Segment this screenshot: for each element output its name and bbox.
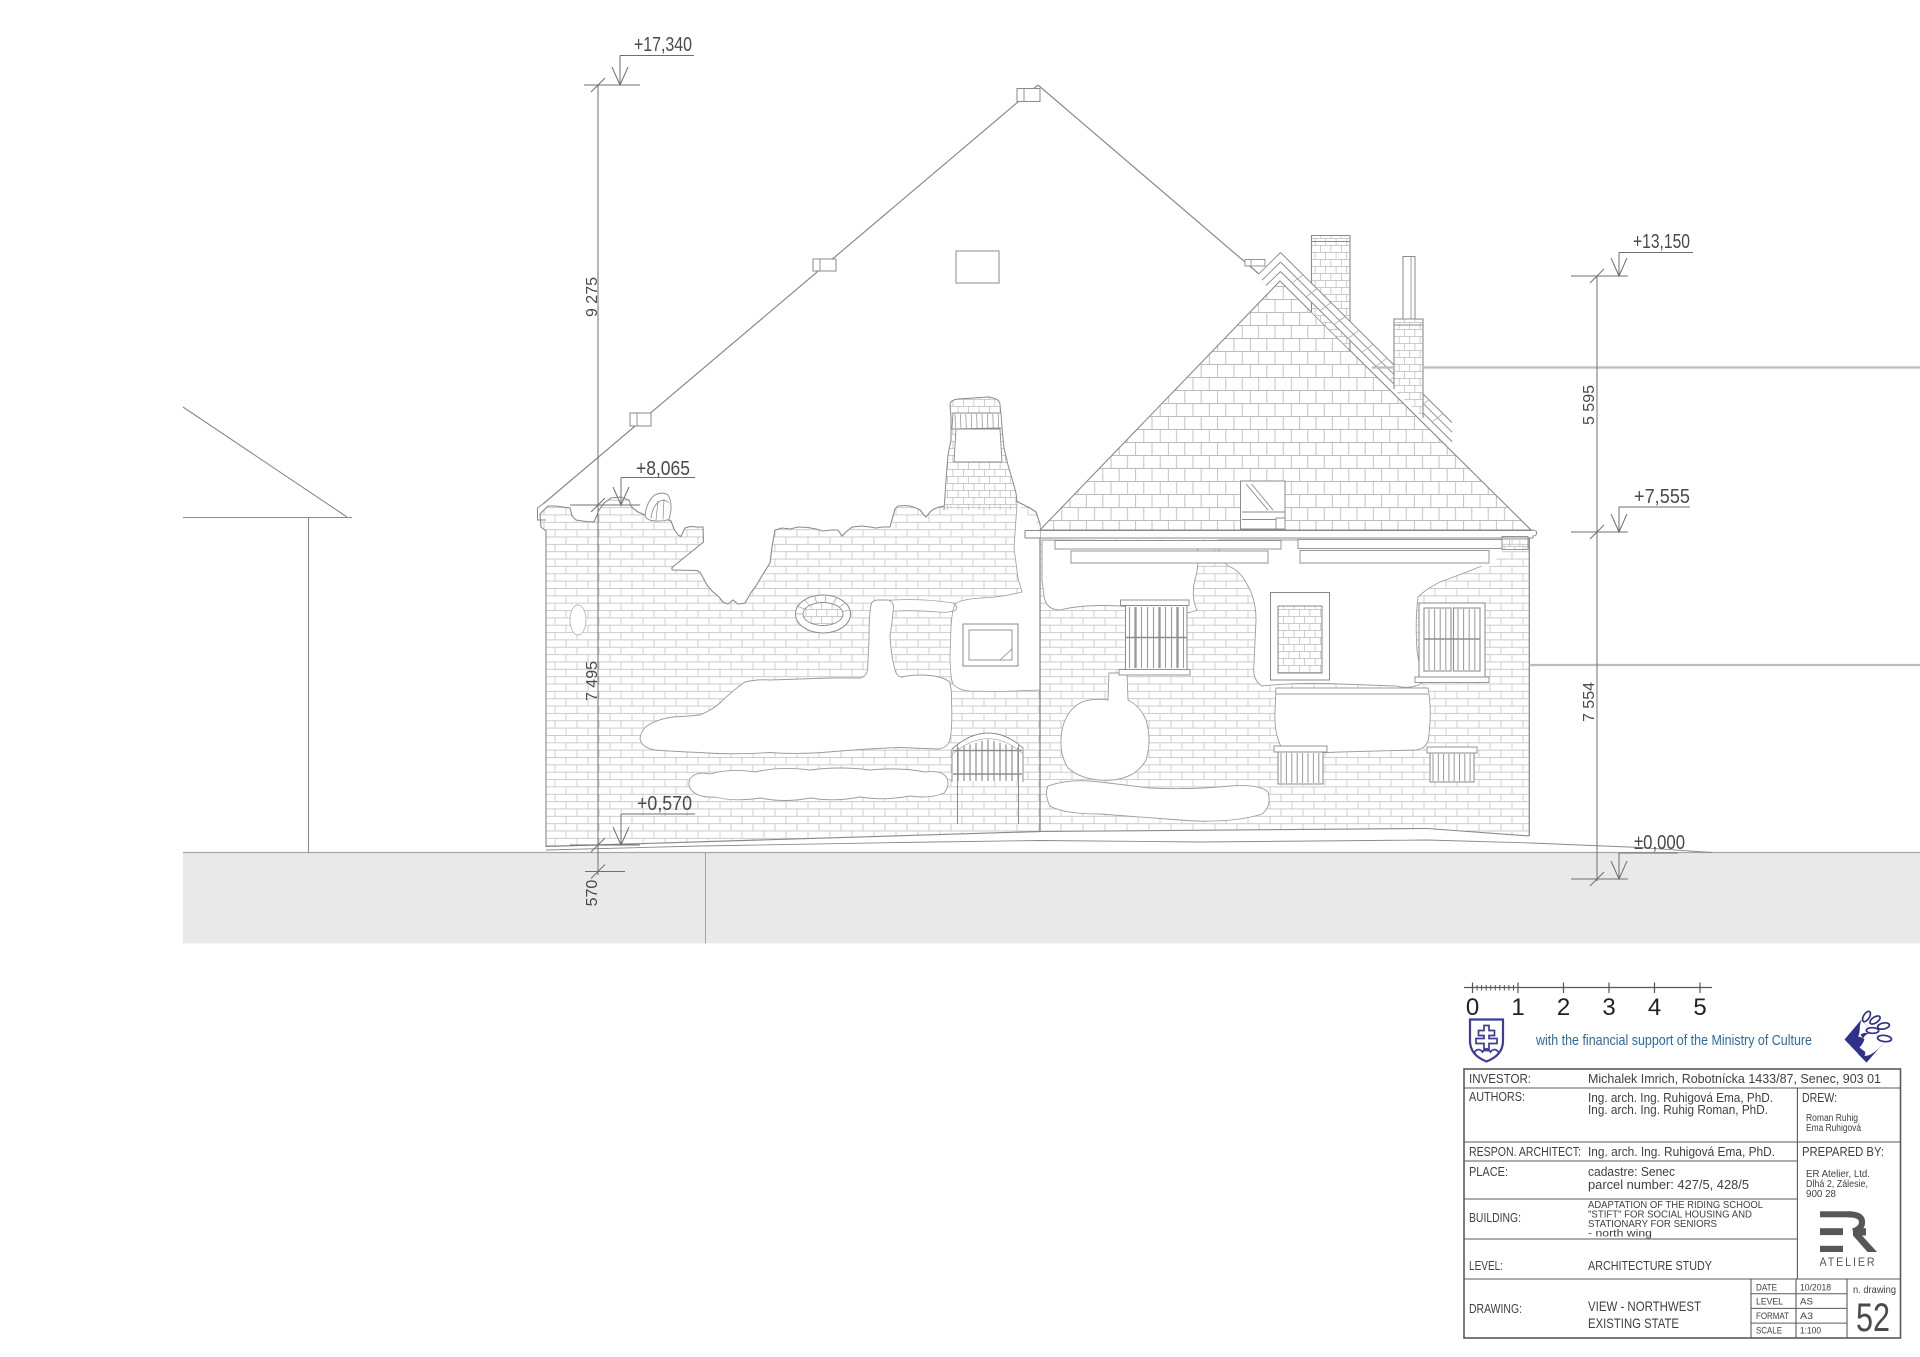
svg-text:BUILDING:: BUILDING: — [1469, 1211, 1521, 1225]
svg-text:ARCHITECTURE STUDY: ARCHITECTURE STUDY — [1588, 1258, 1712, 1273]
svg-text:AUTHORS:: AUTHORS: — [1469, 1090, 1525, 1104]
svg-text:7 554: 7 554 — [1581, 682, 1598, 722]
svg-text:10/2018: 10/2018 — [1800, 1283, 1831, 1294]
svg-text:0: 0 — [1466, 994, 1479, 1021]
svg-text:+8,065: +8,065 — [636, 458, 690, 480]
svg-text:52: 52 — [1856, 1296, 1890, 1340]
svg-text:1: 1 — [1511, 994, 1524, 1021]
svg-text:Michalek Imrich, Robotnícka 14: Michalek Imrich, Robotnícka 1433/87, Sen… — [1588, 1071, 1881, 1086]
svg-text:A3: A3 — [1800, 1311, 1813, 1322]
svg-text:9 275: 9 275 — [584, 277, 601, 317]
svg-text:PREPARED BY:: PREPARED BY: — [1802, 1145, 1884, 1159]
svg-text:PLACE:: PLACE: — [1469, 1165, 1508, 1179]
svg-text:SCALE: SCALE — [1756, 1326, 1782, 1337]
svg-text:5 595: 5 595 — [1581, 385, 1598, 425]
svg-text:LEVEL:: LEVEL: — [1469, 1259, 1503, 1273]
svg-text:VIEW - NORTHWEST: VIEW - NORTHWEST — [1588, 1298, 1701, 1314]
svg-text:ATELIER: ATELIER — [1820, 1257, 1877, 1269]
svg-text:DATE: DATE — [1756, 1283, 1777, 1294]
svg-text:- north wing: - north wing — [1588, 1228, 1652, 1240]
svg-text:INVESTOR:: INVESTOR: — [1469, 1072, 1531, 1086]
svg-text:+7,555: +7,555 — [1634, 486, 1690, 508]
svg-text:2: 2 — [1557, 994, 1570, 1021]
svg-text:EXISTING STATE: EXISTING STATE — [1588, 1315, 1679, 1331]
svg-text:3: 3 — [1602, 994, 1615, 1021]
svg-text:with the financial support of: with the financial support of the Minist… — [1535, 1033, 1812, 1049]
svg-text:Ing. arch. Ing. Ruhigová Ema,: Ing. arch. Ing. Ruhigová Ema, PhD. — [1588, 1144, 1775, 1159]
svg-text:n. drawing: n. drawing — [1853, 1285, 1896, 1296]
svg-text:1:100: 1:100 — [1800, 1326, 1821, 1337]
svg-text:7 495: 7 495 — [584, 661, 601, 701]
svg-text:5: 5 — [1693, 994, 1706, 1021]
svg-text:LEVEL: LEVEL — [1756, 1297, 1783, 1308]
svg-text:+17,340: +17,340 — [634, 34, 692, 56]
svg-text:AS: AS — [1800, 1297, 1813, 1308]
svg-text:+13,150: +13,150 — [1633, 231, 1690, 253]
svg-text:Ema Ruhigová: Ema Ruhigová — [1806, 1123, 1861, 1134]
svg-text:RESPON. ARCHITECT:: RESPON. ARCHITECT: — [1469, 1145, 1581, 1159]
svg-text:900 28: 900 28 — [1806, 1189, 1836, 1200]
svg-text:Ing. arch. Ing. Ruhig Roman, P: Ing. arch. Ing. Ruhig Roman, PhD. — [1588, 1102, 1768, 1117]
svg-text:DRAWING:: DRAWING: — [1469, 1302, 1522, 1316]
svg-text:FORMAT: FORMAT — [1756, 1311, 1789, 1322]
svg-text:DREW:: DREW: — [1802, 1091, 1837, 1105]
svg-text:4: 4 — [1648, 994, 1661, 1021]
svg-text:±0,000: ±0,000 — [1634, 832, 1685, 854]
svg-text:570: 570 — [584, 880, 601, 907]
svg-text:parcel number: 427/5, 428/5: parcel number: 427/5, 428/5 — [1588, 1177, 1749, 1192]
svg-text:+0,570: +0,570 — [637, 793, 692, 815]
